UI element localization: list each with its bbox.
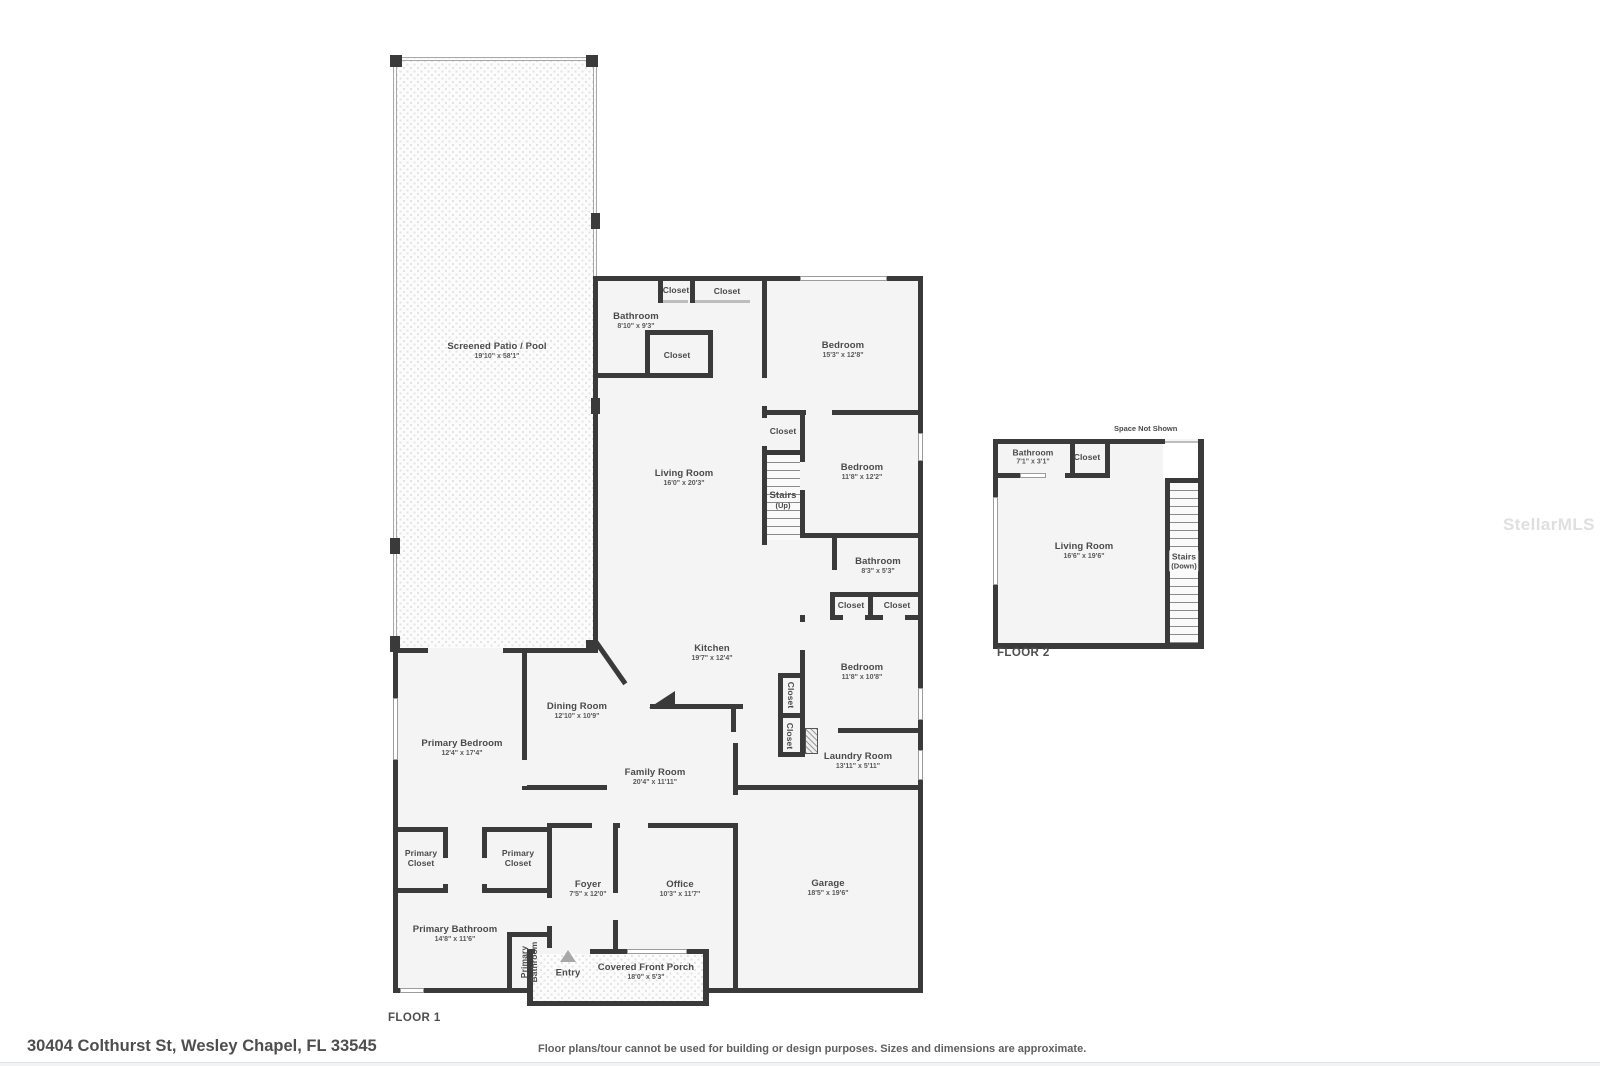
- wall: [645, 330, 650, 378]
- space-not-shown-label: Space Not Shown: [1114, 424, 1177, 433]
- footer-divider: [0, 1062, 1600, 1066]
- door-opening: [800, 622, 805, 650]
- entry-arrow-icon: [560, 950, 576, 962]
- open-boundary: [1165, 441, 1200, 443]
- wall: [482, 827, 552, 832]
- wall: [593, 373, 650, 378]
- room-label-f2-living-room: Living Room 16'6" x 19'6": [1055, 541, 1114, 561]
- window: [918, 750, 923, 780]
- window: [400, 988, 424, 993]
- wall: [830, 592, 923, 597]
- disclaimer-text: Floor plans/tour cannot be used for buil…: [538, 1043, 1086, 1055]
- room-label-bedroom-2: Bedroom 11'8" x 12'2": [841, 462, 883, 482]
- closet-door: [695, 300, 750, 303]
- kitchen-counter-angle: [649, 691, 675, 708]
- window: [993, 497, 998, 585]
- patio-post: [591, 398, 600, 414]
- wall: [778, 673, 805, 678]
- room-label-f2-bathroom: Bathroom 7'1" x 3'1": [1013, 447, 1054, 466]
- window: [800, 276, 887, 281]
- room-label-closet-hall-1: Closet: [838, 600, 865, 610]
- window: [918, 433, 923, 461]
- wall: [613, 823, 618, 893]
- room-label-primary-closet-1: Primary Closet: [397, 848, 445, 868]
- door-opening: [843, 615, 865, 620]
- wall: [708, 330, 713, 378]
- door-opening: [762, 418, 767, 446]
- room-label-family-room: Family Room 20'4" x 11'11": [625, 767, 686, 787]
- room-label-screened-patio: Screened Patio / Pool 19'10" x 58'1": [447, 341, 546, 361]
- wall: [778, 752, 805, 757]
- window: [918, 688, 923, 720]
- room-label-closet-top-2: Closet: [714, 286, 741, 296]
- room-label-entry: Entry: [556, 967, 581, 978]
- door-opening: [800, 462, 805, 490]
- floor1-main-footprint: [593, 276, 923, 993]
- floor-plan-canvas: Screened Patio / Pool 19'10" x 58'1" Bat…: [0, 0, 1600, 1066]
- room-label-closet-mid: Closet: [664, 350, 691, 360]
- window: [1020, 473, 1046, 478]
- room-label-primary-bathroom-vertical: Primary Bathroom: [519, 932, 539, 992]
- room-label-f2-closet: Closet: [1074, 452, 1101, 462]
- window: [627, 949, 687, 954]
- wall: [800, 533, 923, 538]
- room-label-closet-top-1: Closet: [663, 285, 690, 295]
- wall: [993, 439, 1165, 444]
- wall: [762, 450, 805, 455]
- room-label-garage: Garage 18'5" x 19'6": [807, 878, 848, 898]
- door-opening: [547, 898, 552, 926]
- room-label-porch: Covered Front Porch 18'0" x 5'3": [598, 962, 694, 982]
- wall: [733, 785, 923, 790]
- stellar-mls-watermark: StellarMLS: [1503, 515, 1595, 535]
- room-label-closet-stairs: Closet: [770, 426, 797, 436]
- room-label-dining: Dining Room 12'10" x 10'9": [547, 701, 607, 721]
- room-label-kitchen: Kitchen 19'7" x 12'4": [691, 643, 732, 663]
- patio-post: [586, 55, 598, 67]
- door-opening: [883, 615, 905, 620]
- wall: [527, 1001, 709, 1006]
- wall: [762, 410, 923, 415]
- room-label-stairs-up: Stairs (Up): [769, 490, 796, 510]
- wall: [393, 888, 448, 893]
- wall: [482, 888, 552, 893]
- door-opening: [522, 760, 527, 786]
- closet-door: [663, 300, 688, 303]
- room-label-primary-closet-2: Primary Closet: [494, 848, 542, 868]
- wall: [1198, 439, 1204, 649]
- property-address: 30404 Colthurst St, Wesley Chapel, FL 33…: [27, 1037, 377, 1056]
- room-label-foyer: Foyer 7'5" x 12'0": [569, 879, 606, 899]
- wall: [645, 373, 713, 378]
- wall: [778, 713, 805, 718]
- room-label-primary-bathroom: Primary Bathroom 14'8" x 11'6": [413, 924, 497, 944]
- room-label-bathroom-top: Bathroom 8'10" x 9'3": [613, 311, 659, 331]
- wall: [690, 276, 695, 303]
- room-label-bathroom-2: Bathroom 8'3" x 5'3": [855, 556, 901, 576]
- door-opening: [762, 378, 767, 406]
- room-label-closet-v1: Closet: [786, 682, 796, 709]
- window: [393, 698, 398, 760]
- kitchen-counter: [731, 704, 736, 732]
- wall: [547, 823, 592, 828]
- door-opening: [1045, 473, 1065, 478]
- patio-post: [390, 538, 400, 554]
- wall: [507, 932, 512, 993]
- room-label-closet-v2: Closet: [785, 723, 795, 750]
- wall: [703, 949, 709, 1006]
- door-opening: [428, 648, 503, 653]
- wall: [832, 538, 837, 570]
- room-label-office: Office 10'3" x 11'7": [660, 879, 701, 899]
- door-opening: [620, 823, 648, 828]
- room-label-laundry: Laundry Room 13'11" x 5'11": [824, 751, 892, 771]
- wall: [613, 920, 618, 949]
- room-label-bedroom-1: Bedroom 15'3" x 12'8": [822, 340, 864, 360]
- room-label-f2-stairs-down: Stairs (Down): [1169, 550, 1198, 571]
- wall: [522, 785, 607, 790]
- patio-post: [591, 213, 600, 229]
- room-label-bedroom-3: Bedroom 11'8" x 10'8": [841, 662, 883, 682]
- floor1-label: FLOOR 1: [388, 1012, 441, 1024]
- wall: [393, 827, 448, 832]
- room-label-living-room: Living Room 16'0" x 20'3": [655, 468, 714, 488]
- wall: [1165, 478, 1204, 483]
- water-heater-hatch: [805, 728, 818, 754]
- wall: [733, 743, 738, 790]
- patio-post: [390, 55, 402, 67]
- wall: [830, 592, 835, 620]
- floor2-space-not-shown-area: [1163, 443, 1198, 479]
- door-opening: [482, 858, 487, 884]
- patio-post: [586, 640, 598, 653]
- wall: [918, 276, 923, 993]
- room-label-closet-hall-2: Closet: [884, 600, 911, 610]
- room-label-primary-bedroom: Primary Bedroom 12'4" x 17'4": [421, 738, 502, 758]
- wall: [1105, 439, 1110, 478]
- wall: [593, 276, 598, 653]
- patio-post: [390, 636, 400, 652]
- floor2-label: FLOOR 2: [997, 647, 1050, 659]
- door-opening: [733, 795, 738, 823]
- wall: [868, 592, 873, 620]
- door-opening: [806, 410, 832, 415]
